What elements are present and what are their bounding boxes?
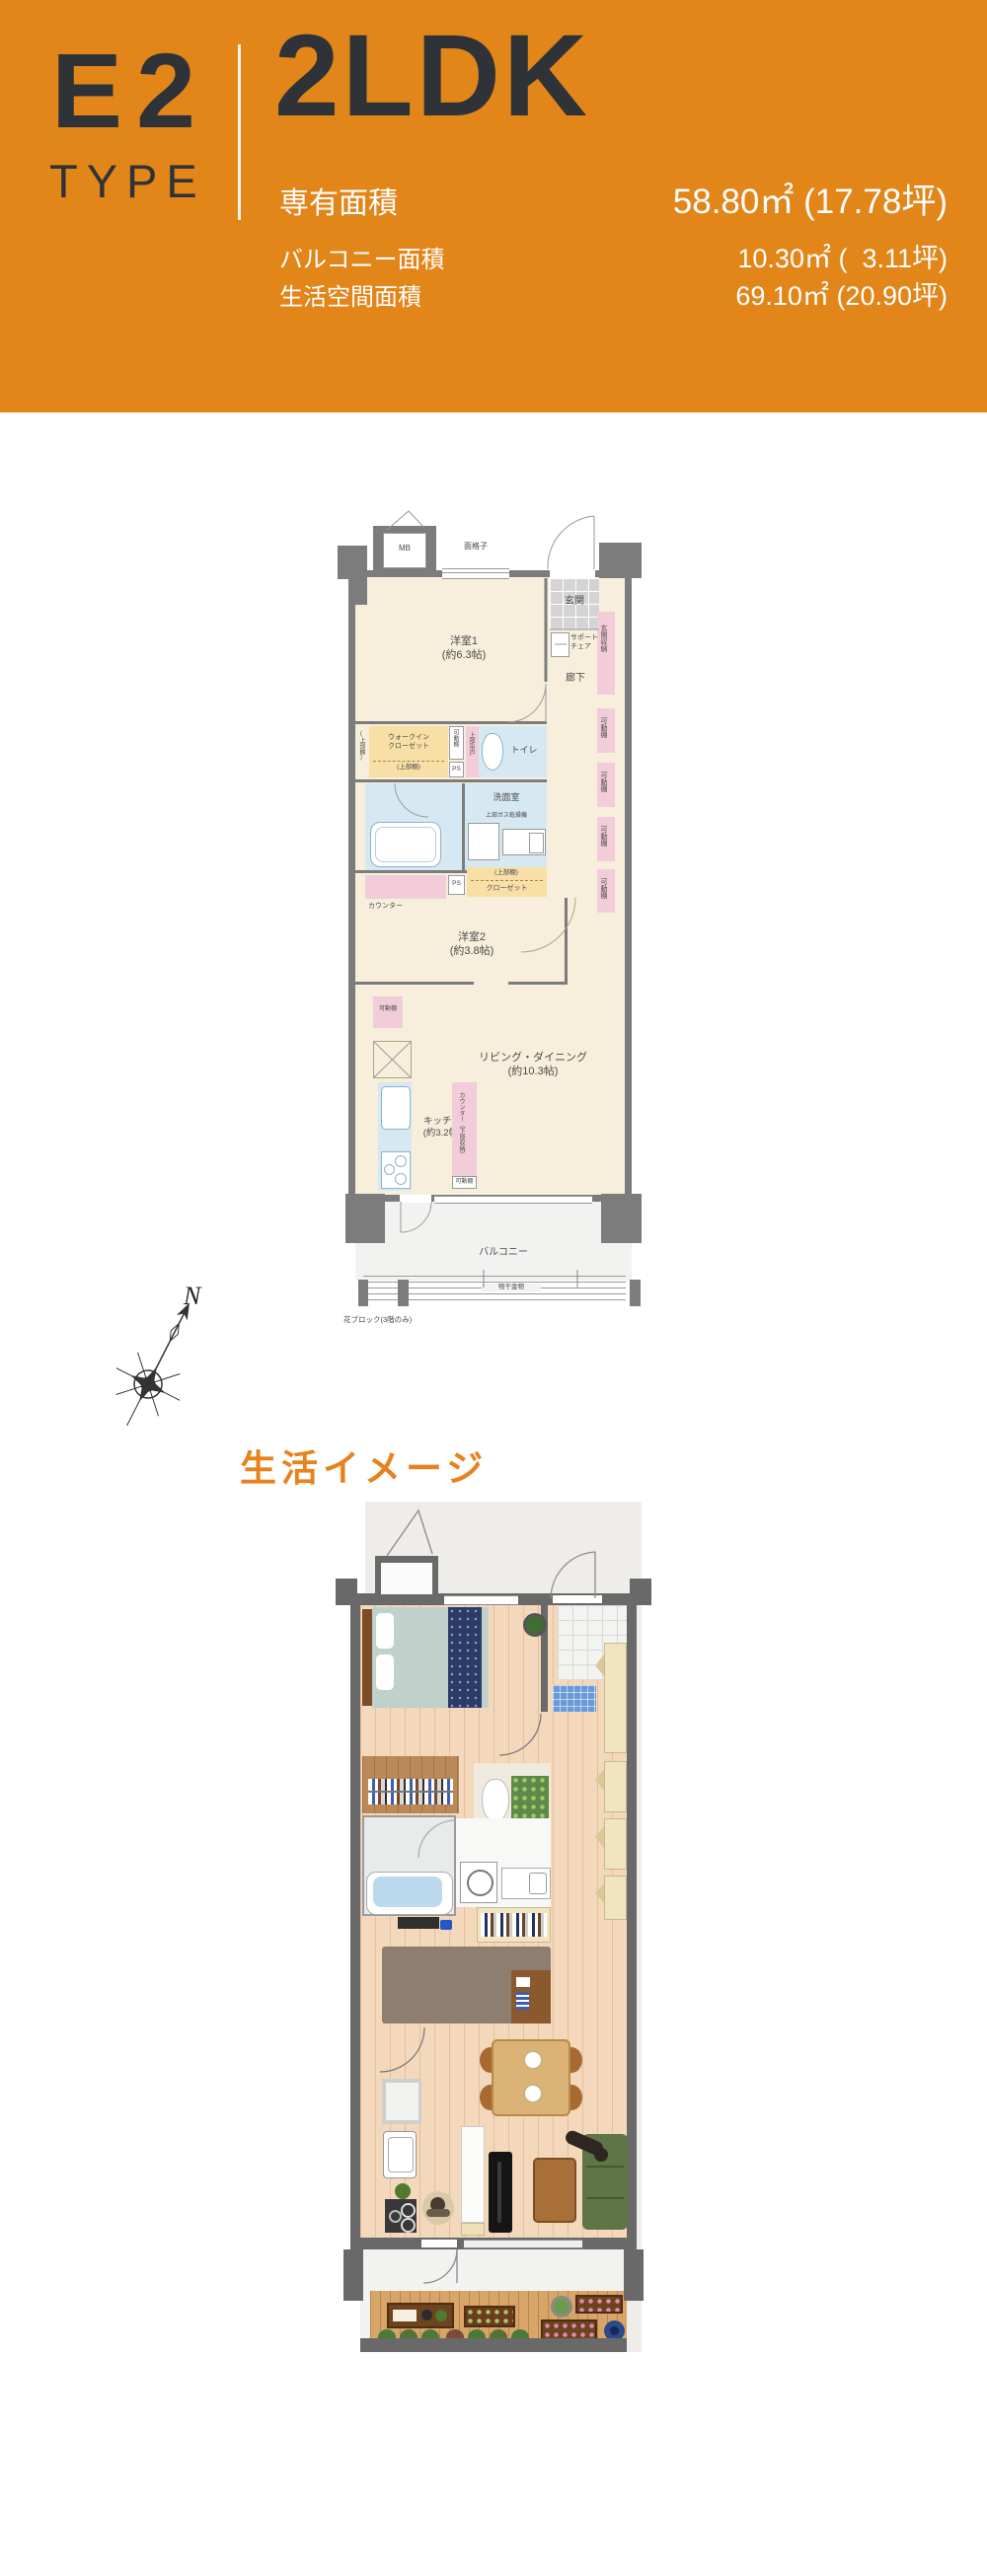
area-value: 10.30㎡ ( 3.11坪) — [737, 237, 948, 275]
header-banner: E2 TYPE 2LDK 専有面積 58.80㎡ (17.78坪) バルコニー面… — [0, 0, 987, 412]
area-value: 58.80㎡ (17.78坪) — [673, 174, 948, 224]
area-row-main: 専有面積 58.80㎡ (17.78坪) — [279, 174, 948, 224]
area-label: 生活空間面積 — [279, 277, 421, 312]
compass: N — [99, 1283, 227, 1440]
layout-name: 2LDK — [274, 18, 590, 134]
area-label: 専有面積 — [279, 179, 398, 222]
section-title: 生活イメージ — [240, 1438, 488, 1492]
plan1-lines — [336, 508, 651, 1347]
plan2-lines — [336, 1495, 651, 2368]
header-divider — [238, 44, 241, 220]
type-word: TYPE — [49, 158, 206, 204]
type-code: E2 — [51, 37, 209, 144]
area-value: 69.10㎡ (20.90坪) — [735, 274, 948, 313]
floorplan-lifestyle — [336, 1495, 651, 2368]
compass-north: N — [183, 1283, 202, 1310]
area-row-living-space: 生活空間面積 69.10㎡ (20.90坪) — [279, 274, 948, 313]
floorplan-drawing: MB 面格子 玄関 サポート チェア 玄関収納 可動棚 可動棚 可動棚 可動棚 … — [336, 508, 651, 1347]
area-label: バルコニー面積 — [279, 240, 445, 274]
page: E2 TYPE 2LDK 専有面積 58.80㎡ (17.78坪) バルコニー面… — [0, 0, 987, 2576]
area-row-balcony: バルコニー面積 10.30㎡ ( 3.11坪) — [279, 237, 948, 275]
